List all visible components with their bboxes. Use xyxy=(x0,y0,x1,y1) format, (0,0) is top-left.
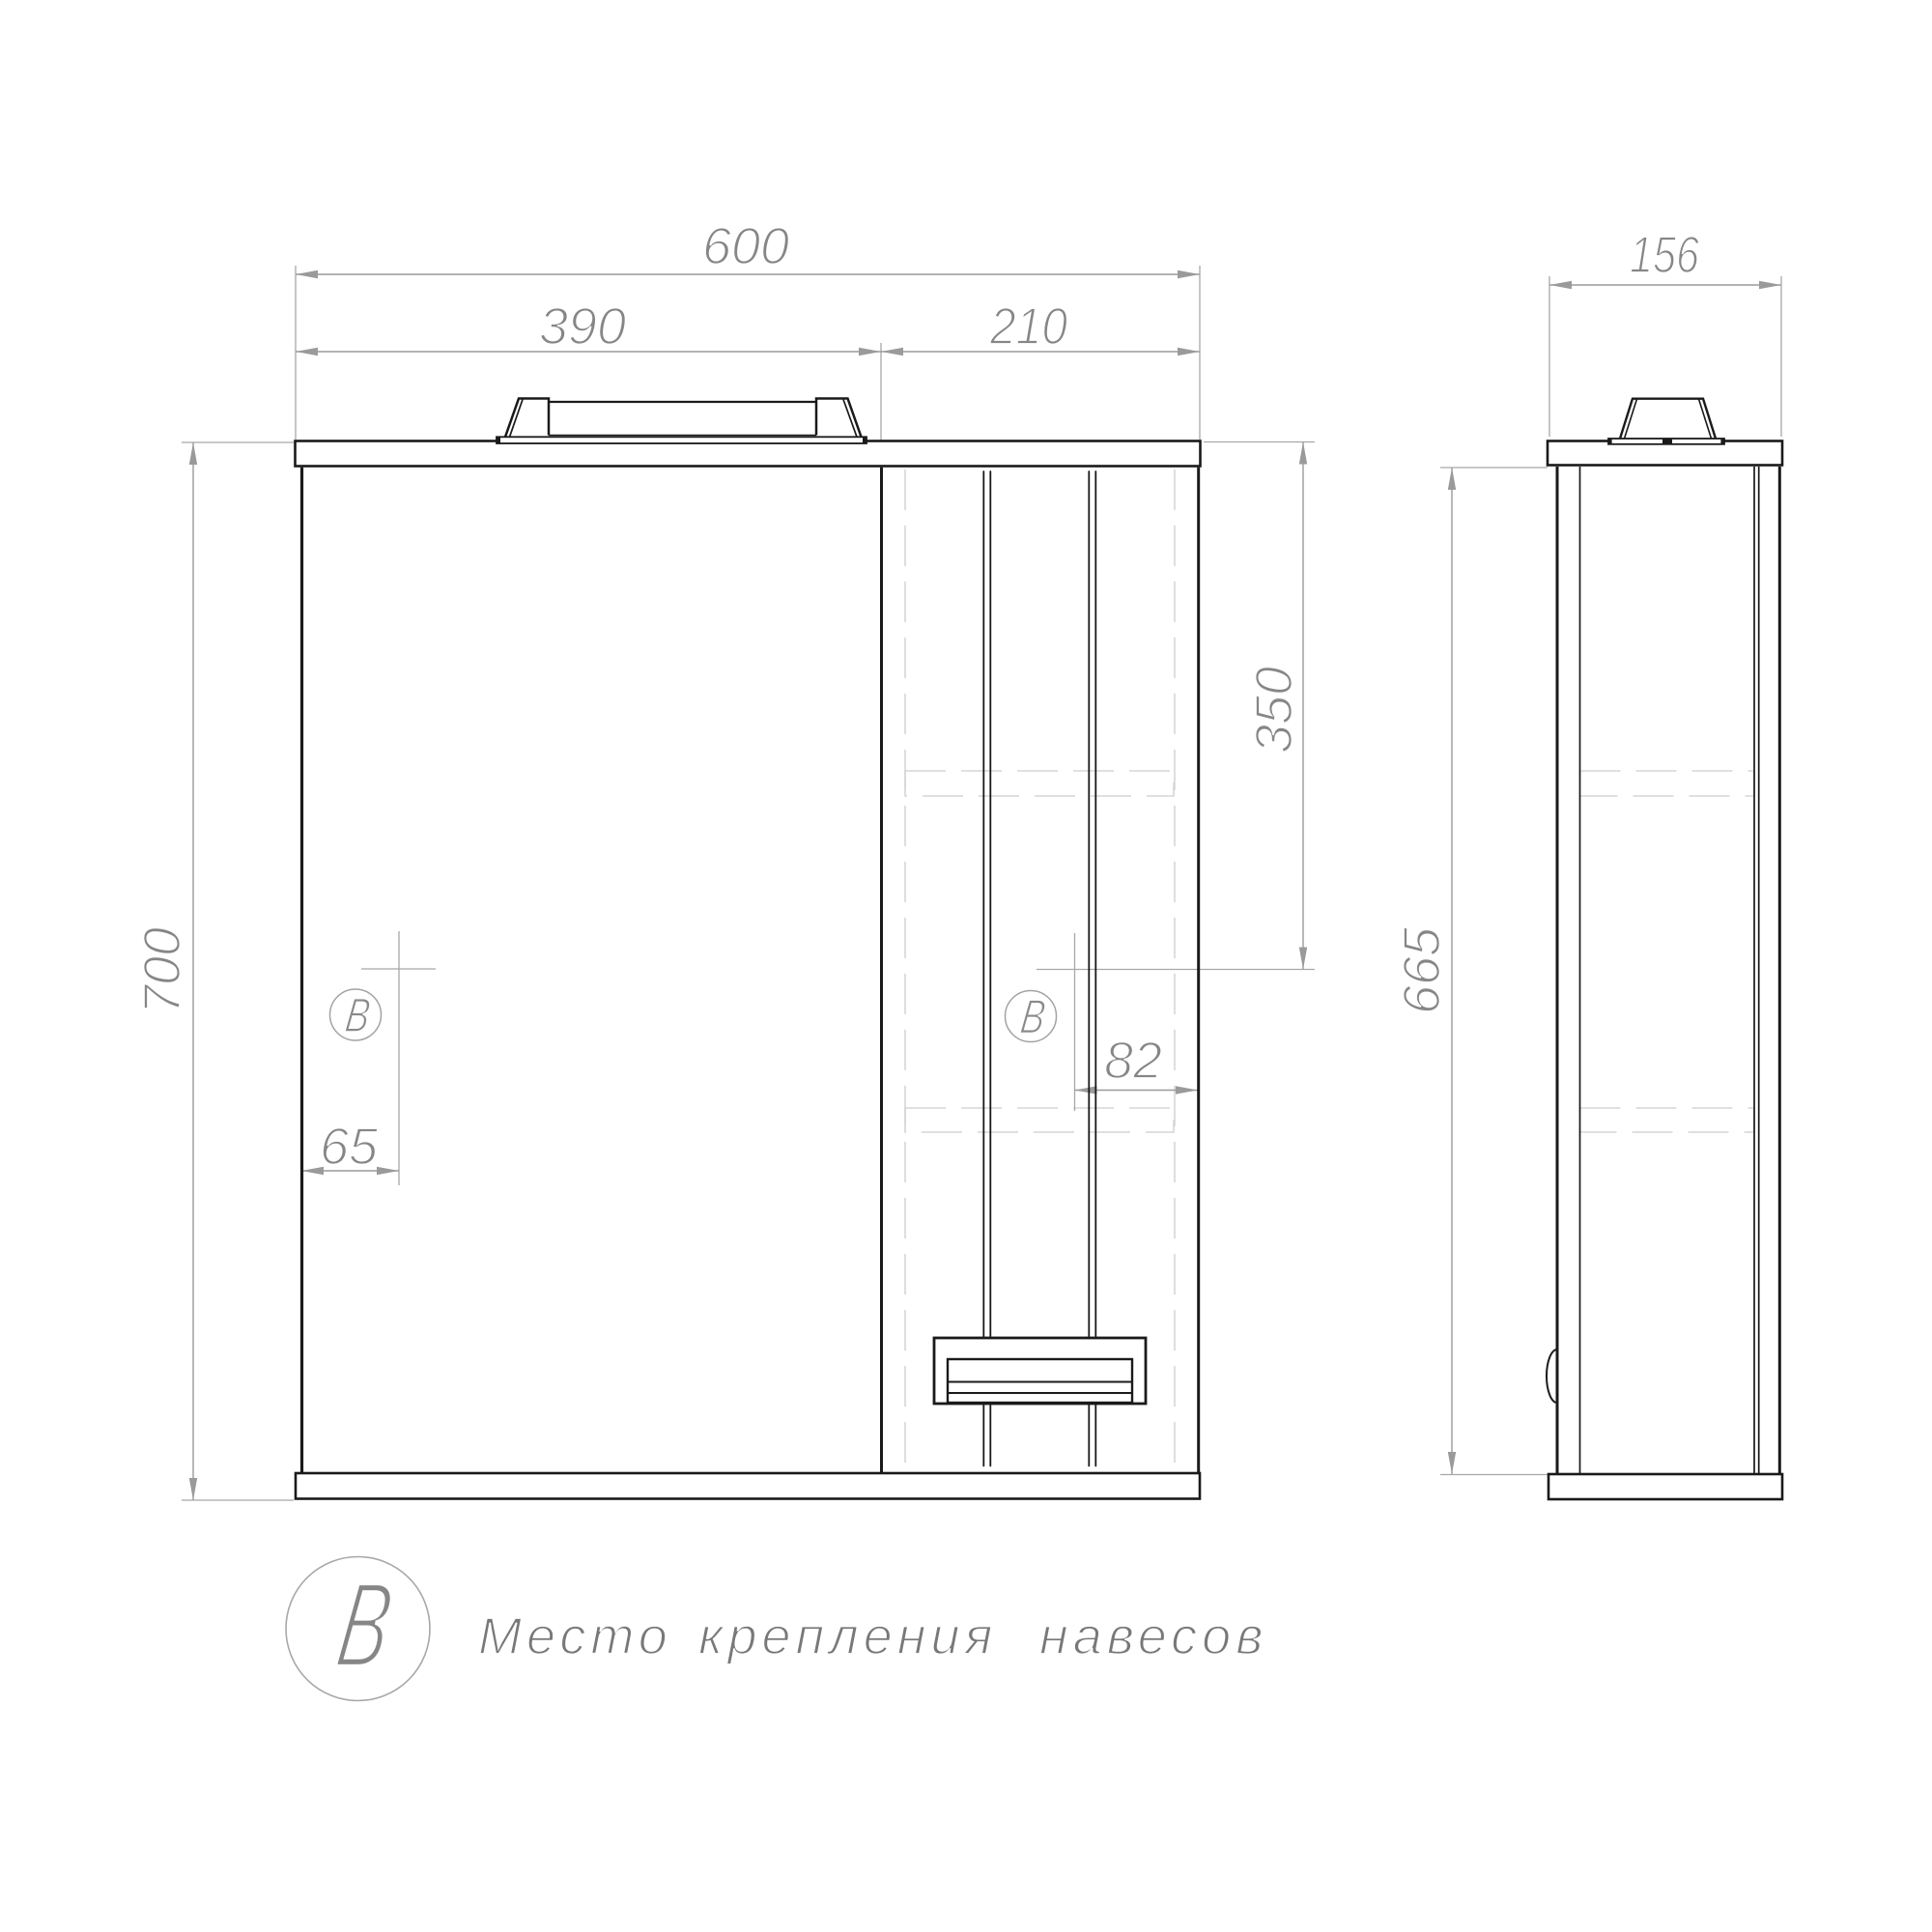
svg-text:390: 390 xyxy=(539,298,626,355)
svg-text:600: 600 xyxy=(702,217,789,275)
svg-text:156: 156 xyxy=(1630,226,1700,284)
svg-text:крепления: крепления xyxy=(698,1607,997,1665)
svg-text:82: 82 xyxy=(1104,1032,1162,1090)
svg-text:350: 350 xyxy=(1245,667,1303,753)
svg-text:210: 210 xyxy=(989,298,1067,355)
svg-text:навесов: навесов xyxy=(1039,1607,1267,1665)
svg-text:Место: Место xyxy=(478,1607,672,1665)
svg-text:65: 65 xyxy=(320,1118,379,1176)
svg-text:665: 665 xyxy=(1393,926,1451,1014)
svg-text:700: 700 xyxy=(133,927,191,1014)
